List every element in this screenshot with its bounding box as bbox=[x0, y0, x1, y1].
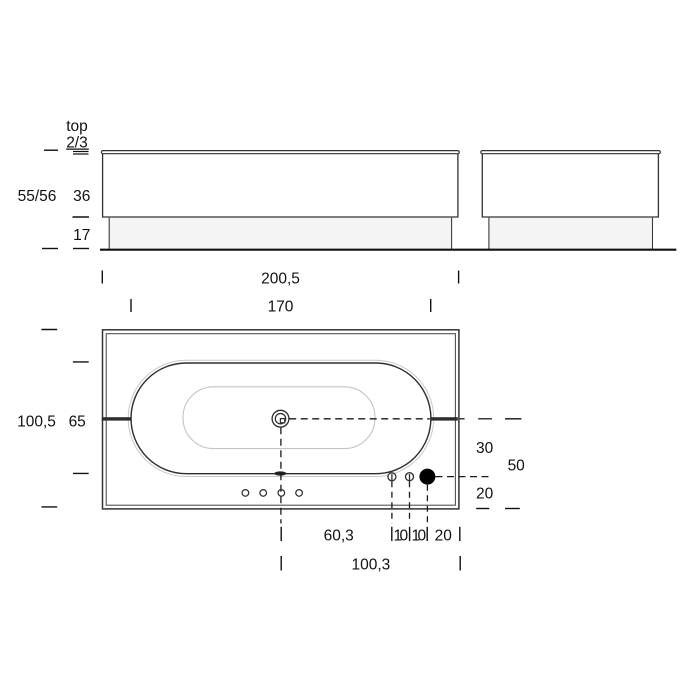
svg-text:30: 30 bbox=[476, 440, 494, 457]
svg-text:20: 20 bbox=[435, 528, 453, 545]
svg-text:50: 50 bbox=[508, 457, 526, 474]
svg-text:100,3: 100,3 bbox=[352, 557, 391, 574]
svg-text:36: 36 bbox=[73, 188, 90, 205]
svg-text:10: 10 bbox=[393, 528, 408, 545]
svg-text:top: top bbox=[66, 118, 88, 135]
svg-text:170: 170 bbox=[268, 298, 294, 315]
svg-text:10: 10 bbox=[411, 528, 426, 545]
svg-text:200,5: 200,5 bbox=[261, 271, 300, 288]
svg-text:55/56: 55/56 bbox=[18, 188, 57, 205]
svg-text:100,5: 100,5 bbox=[17, 413, 56, 430]
svg-text:65: 65 bbox=[69, 413, 86, 430]
svg-text:60,3: 60,3 bbox=[324, 528, 354, 545]
svg-text:17: 17 bbox=[73, 227, 90, 244]
svg-text:20: 20 bbox=[476, 485, 494, 502]
